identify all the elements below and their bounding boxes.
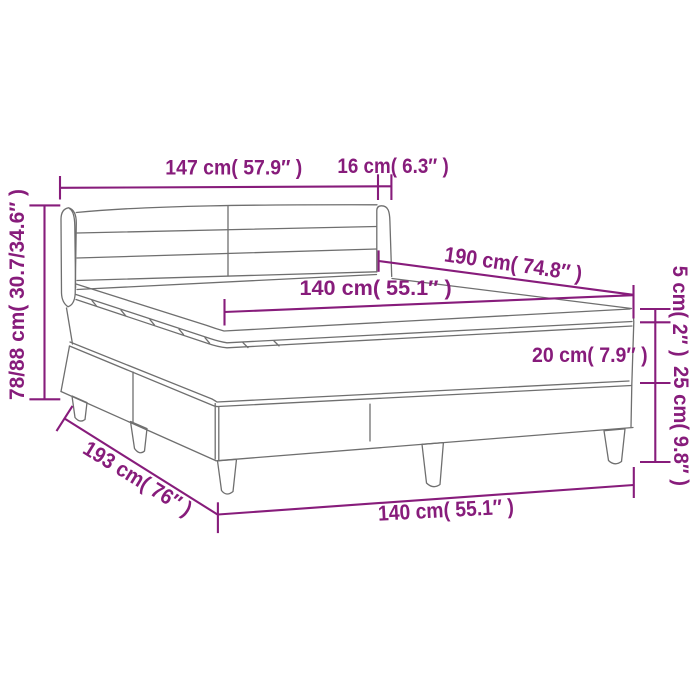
svg-text:78/88 cm( 30.7/34.6″ ): 78/88 cm( 30.7/34.6″ ) <box>5 189 29 400</box>
svg-text:16 cm( 6.3″ ): 16 cm( 6.3″ ) <box>337 154 448 178</box>
svg-text:5 cm( 2″ ): 5 cm( 2″ ) <box>668 266 692 357</box>
svg-text:147 cm( 57.9″ ): 147 cm( 57.9″ ) <box>165 156 302 180</box>
svg-text:20 cm( 7.9″ ): 20 cm( 7.9″ ) <box>532 343 648 367</box>
svg-text:25 cm( 9.8″ ): 25 cm( 9.8″ ) <box>669 366 693 486</box>
svg-text:140 cm( 55.1″ ): 140 cm( 55.1″ ) <box>300 276 452 300</box>
